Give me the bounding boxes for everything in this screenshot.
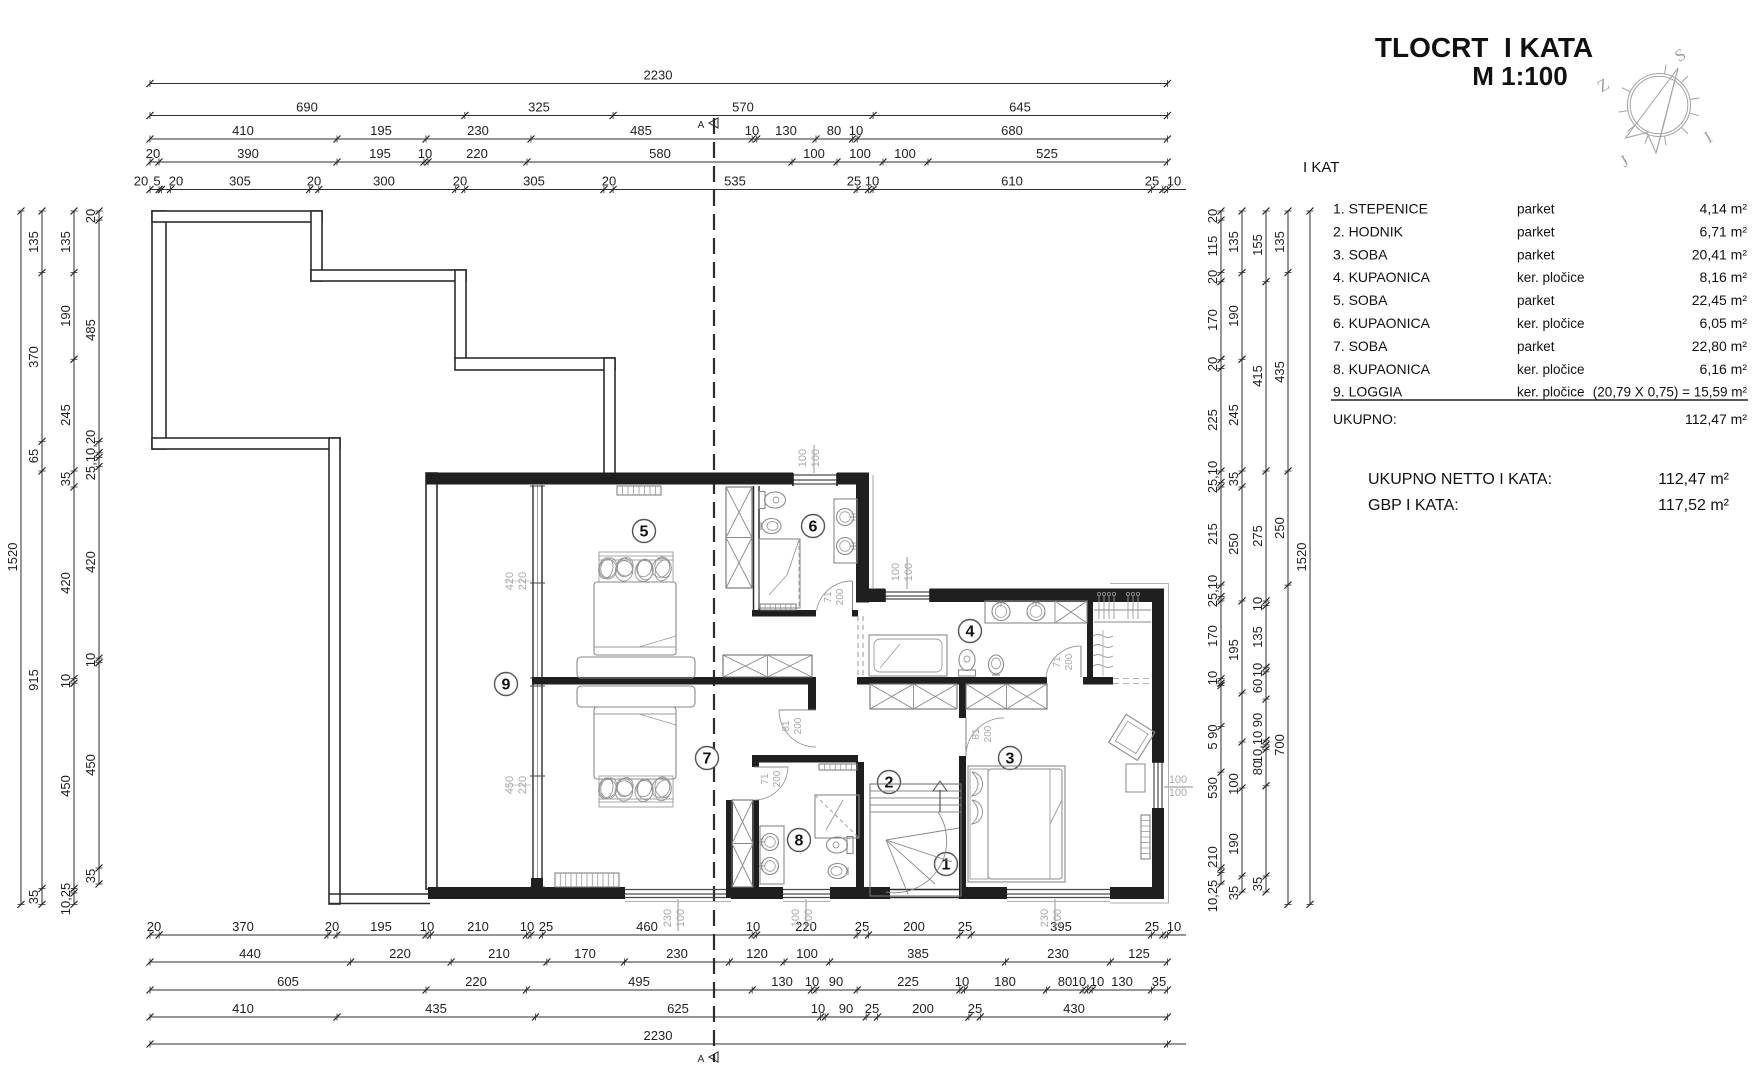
svg-text:2230: 2230 [644,68,673,83]
svg-text:100: 100 [849,146,871,161]
svg-text:420: 420 [83,551,98,573]
svg-text:195: 195 [370,123,392,138]
svg-text:625: 625 [667,1001,689,1016]
svg-text:245: 245 [58,404,73,426]
svg-text:M 1:100: M 1:100 [1472,61,1567,91]
svg-text:90: 90 [1250,713,1265,727]
svg-text:220: 220 [517,572,529,590]
svg-text:71: 71 [1052,656,1063,668]
svg-text:100: 100 [803,909,815,927]
svg-text:410: 410 [232,1001,254,1016]
svg-text:220: 220 [466,146,488,161]
svg-text:25: 25 [865,1001,879,1016]
svg-text:570: 570 [732,100,754,115]
svg-text:6,16 m²: 6,16 m² [1700,361,1748,377]
svg-text:25,10: 25,10 [1205,461,1220,494]
svg-text:220: 220 [389,946,411,961]
svg-text:parket: parket [1517,293,1555,308]
svg-text:230: 230 [666,946,688,961]
svg-text:2230: 2230 [644,1028,673,1043]
svg-text:parket: parket [1517,202,1555,217]
svg-text:100: 100 [790,909,802,927]
svg-text:parket: parket [1517,224,1555,239]
svg-text:200: 200 [903,919,925,934]
svg-text:10: 10 [955,974,969,989]
svg-text:4,14 m²: 4,14 m² [1700,201,1748,217]
svg-text:100: 100 [810,449,822,467]
svg-text:10,10: 10,10 [1072,974,1105,989]
svg-text:10: 10 [58,674,73,688]
svg-text:5. SOBA: 5. SOBA [1333,292,1388,308]
svg-text:ker. pločice: ker. pločice [1517,270,1585,285]
svg-text:10: 10 [420,919,434,934]
svg-text:20: 20 [1205,270,1220,284]
svg-text:112,47 m²: 112,47 m² [1658,471,1730,488]
svg-text:450: 450 [83,754,98,776]
svg-text:100: 100 [796,946,818,961]
svg-text:25: 25 [855,919,869,934]
svg-text:230: 230 [1047,946,1069,961]
svg-text:200: 200 [983,725,994,742]
svg-text:10: 10 [805,974,819,989]
svg-text:1. STEPENICE: 1. STEPENICE [1333,201,1428,217]
svg-text:250: 250 [1226,533,1241,555]
svg-text:180: 180 [994,974,1016,989]
svg-text:7. SOBA: 7. SOBA [1333,338,1388,354]
svg-text:485: 485 [83,319,98,341]
svg-text:10: 10 [849,123,863,138]
svg-text:915: 915 [26,669,41,691]
svg-text:20: 20 [307,174,321,189]
svg-text:10: 10 [1167,919,1181,934]
svg-text:690: 690 [296,100,318,115]
svg-text:ker. pločice: ker. pločice [1517,385,1585,400]
svg-text:170: 170 [574,946,596,961]
svg-text:225: 225 [897,974,919,989]
svg-text:195: 195 [370,919,392,934]
svg-text:190: 190 [58,305,73,327]
svg-text:100: 100 [890,563,902,581]
svg-text:UKUPNO:: UKUPNO: [1333,411,1397,427]
svg-text:275: 275 [1250,525,1265,547]
svg-text:10: 10 [83,653,98,667]
svg-text:A: A [698,1054,705,1065]
svg-text:90: 90 [839,1001,853,1016]
svg-text:25: 25 [958,919,972,934]
svg-text:35: 35 [26,890,41,904]
svg-text:25: 25 [1145,174,1159,189]
svg-text:80: 80 [827,123,841,138]
svg-text:435: 435 [1272,361,1287,383]
svg-text:8. KUPAONICA: 8. KUPAONICA [1333,361,1431,377]
svg-text:3: 3 [1006,751,1015,768]
svg-text:305: 305 [229,174,251,189]
svg-text:71: 71 [760,773,771,785]
svg-text:450: 450 [504,776,516,794]
svg-text:20: 20 [325,919,339,934]
svg-text:35: 35 [1152,974,1166,989]
svg-text:100: 100 [1052,909,1064,927]
svg-text:25: 25 [847,174,861,189]
svg-text:170: 170 [1205,625,1220,647]
svg-text:420: 420 [58,572,73,594]
svg-text:4. KUPAONICA: 4. KUPAONICA [1333,269,1431,285]
svg-text:25,10: 25,10 [1205,575,1220,608]
svg-text:190: 190 [1226,833,1241,855]
svg-text:10: 10 [1250,597,1265,611]
svg-text:4: 4 [966,624,975,641]
svg-text:20: 20 [602,174,616,189]
svg-text:420: 420 [504,572,516,590]
svg-text:230: 230 [1039,909,1051,927]
svg-text:100: 100 [803,146,825,161]
svg-text:80: 80 [1058,974,1072,989]
svg-text:135: 135 [26,231,41,253]
svg-text:5: 5 [153,174,160,189]
svg-text:130: 130 [771,974,793,989]
svg-text:10: 10 [746,919,760,934]
svg-text:230: 230 [662,909,674,927]
svg-text:10,25: 10,25 [58,883,73,916]
svg-text:6: 6 [809,519,818,536]
svg-text:90: 90 [829,974,843,989]
svg-text:117,52 m²: 117,52 m² [1658,497,1730,514]
svg-text:100: 100 [894,146,916,161]
svg-text:100: 100 [797,449,809,467]
svg-text:20: 20 [147,919,161,934]
svg-text:81: 81 [971,728,982,740]
svg-text:700: 700 [1272,734,1287,756]
svg-text:190: 190 [1226,305,1241,327]
svg-text:610: 610 [1001,174,1023,189]
svg-text:460: 460 [636,919,658,934]
svg-text:530: 530 [1205,777,1220,799]
svg-text:195: 195 [369,146,391,161]
svg-text:8: 8 [795,833,804,850]
svg-text:200: 200 [772,770,783,787]
svg-text:220: 220 [517,776,529,794]
svg-text:125: 125 [1128,946,1150,961]
svg-text:450: 450 [58,775,73,797]
svg-text:112,47 m²: 112,47 m² [1685,411,1747,427]
svg-text:525: 525 [1036,146,1058,161]
svg-text:430: 430 [1063,1001,1085,1016]
svg-text:1520: 1520 [5,543,20,572]
svg-text:130: 130 [1111,974,1133,989]
svg-text:485: 485 [630,123,652,138]
svg-text:605: 605 [277,974,299,989]
svg-text:20: 20 [1205,209,1220,223]
svg-text:71: 71 [823,591,834,603]
svg-text:7: 7 [703,751,712,768]
svg-text:10,10: 10,10 [1250,731,1265,764]
svg-text:9: 9 [502,677,511,694]
svg-text:680: 680 [1001,123,1023,138]
svg-text:200: 200 [835,588,846,605]
svg-text:80: 80 [1250,761,1265,775]
svg-text:215: 215 [1205,523,1220,545]
svg-text:245: 245 [1226,404,1241,426]
svg-text:10: 10 [865,174,879,189]
svg-text:10: 10 [745,123,759,138]
svg-text:parket: parket [1517,247,1555,262]
svg-text:210: 210 [488,946,510,961]
svg-text:35: 35 [1250,877,1265,891]
svg-text:35: 35 [58,472,73,486]
svg-text:22,80 m²: 22,80 m² [1692,338,1748,354]
svg-text:370: 370 [232,919,254,934]
svg-text:100: 100 [675,909,687,927]
svg-text:385: 385 [907,946,929,961]
svg-text:135: 135 [1226,231,1241,253]
svg-text:GBP I KATA:: GBP I KATA: [1368,497,1459,514]
svg-text:135: 135 [1250,626,1265,648]
svg-text:2. HODNIK: 2. HODNIK [1333,223,1404,239]
svg-text:370: 370 [26,346,41,368]
svg-text:495: 495 [628,974,650,989]
svg-text:130: 130 [775,123,797,138]
svg-text:20: 20 [83,209,98,223]
svg-text:170: 170 [1205,309,1220,331]
svg-text:10: 10 [1167,174,1181,189]
svg-text:65: 65 [26,449,41,463]
svg-text:5: 5 [640,524,649,541]
svg-text:35: 35 [83,869,98,883]
svg-text:6. KUPAONICA: 6. KUPAONICA [1333,315,1431,331]
svg-text:(20,79 X 0,75) = 15,59 m²: (20,79 X 0,75) = 15,59 m² [1593,385,1748,400]
svg-text:3. SOBA: 3. SOBA [1333,246,1388,262]
svg-text:22,45 m²: 22,45 m² [1692,292,1748,308]
svg-text:ker. pločice: ker. pločice [1517,362,1585,377]
svg-text:8,16 m²: 8,16 m² [1700,269,1748,285]
svg-text:10: 10 [811,1001,825,1016]
svg-text:440: 440 [239,946,261,961]
svg-text:10: 10 [1205,671,1220,685]
svg-text:20,41 m²: 20,41 m² [1692,246,1748,262]
svg-text:A: A [698,120,705,131]
svg-text:1520: 1520 [1294,543,1309,572]
svg-text:81: 81 [781,720,792,732]
svg-text:ker. pločice: ker. pločice [1517,316,1585,331]
svg-text:TLOCRT I KATA: TLOCRT I KATA [1375,32,1593,63]
svg-text:200: 200 [793,717,804,734]
svg-text:5 90: 5 90 [1205,724,1220,749]
svg-text:20: 20 [134,174,148,189]
svg-text:155: 155 [1250,234,1265,256]
svg-text:20: 20 [169,174,183,189]
svg-text:250: 250 [1272,517,1287,539]
svg-text:100: 100 [1226,773,1241,795]
svg-text:6,05 m²: 6,05 m² [1700,315,1748,331]
svg-text:25: 25 [1145,919,1159,934]
svg-text:200: 200 [912,1001,934,1016]
svg-text:645: 645 [1009,100,1031,115]
svg-text:10: 10 [520,919,534,934]
svg-text:195: 195 [1226,639,1241,661]
svg-text:20: 20 [146,146,160,161]
svg-text:325: 325 [528,100,550,115]
svg-text:25: 25 [968,1001,982,1016]
svg-text:535: 535 [724,174,746,189]
svg-text:135: 135 [58,231,73,253]
svg-text:100: 100 [1169,787,1187,799]
svg-text:415: 415 [1250,365,1265,387]
svg-text:25: 25 [539,919,553,934]
svg-text:9. LOGGIA: 9. LOGGIA [1333,384,1403,400]
svg-text:2: 2 [885,775,894,792]
svg-text:20: 20 [453,174,467,189]
svg-text:435: 435 [425,1001,447,1016]
svg-text:220: 220 [465,974,487,989]
svg-text:10: 10 [418,146,432,161]
svg-text:305: 305 [523,174,545,189]
svg-text:35: 35 [1226,886,1241,900]
svg-text:230: 230 [467,123,489,138]
svg-text:225: 225 [1205,409,1220,431]
svg-text:25,10,20: 25,10,20 [83,430,98,481]
svg-text:210: 210 [1205,846,1220,868]
svg-text:210: 210 [467,919,489,934]
svg-text:410: 410 [232,123,254,138]
svg-text:200: 200 [1064,653,1075,670]
svg-text:300: 300 [373,174,395,189]
svg-text:390: 390 [237,146,259,161]
svg-text:10,25: 10,25 [1205,880,1220,913]
svg-text:20: 20 [1205,357,1220,371]
svg-text:60: 60 [1250,679,1265,693]
svg-text:100: 100 [1169,774,1187,786]
svg-text:10: 10 [1250,663,1265,677]
svg-text:UKUPNO NETTO I KATA:: UKUPNO NETTO I KATA: [1368,471,1552,488]
svg-text:115: 115 [1205,236,1220,257]
svg-text:120: 120 [746,946,768,961]
svg-text:100: 100 [903,563,915,581]
svg-text:I KAT: I KAT [1303,159,1339,176]
svg-text:580: 580 [649,146,671,161]
svg-text:35: 35 [1226,472,1241,486]
svg-text:135: 135 [1272,231,1287,253]
svg-text:parket: parket [1517,339,1555,354]
svg-text:6,71 m²: 6,71 m² [1700,223,1748,239]
